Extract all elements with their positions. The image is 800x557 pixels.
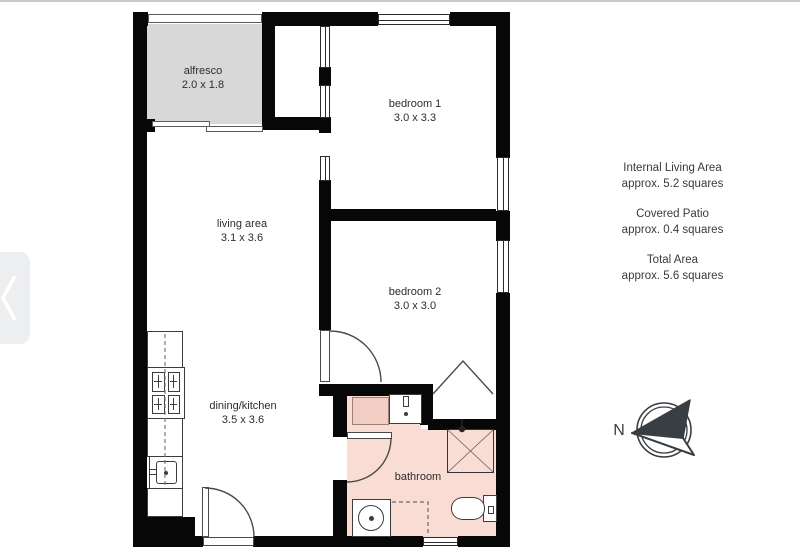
room-dims: 2.0 x 1.8 [128,78,278,92]
room-name: bedroom 2 [340,285,490,299]
room-name: dining/kitchen [168,399,318,413]
summary-value: approx. 0.4 squares [580,222,765,238]
room-label-bedroom2: bedroom 2 3.0 x 3.0 [340,285,490,313]
summary-title: Internal Living Area [580,160,765,176]
summary-item: Total Area approx. 5.6 squares [580,252,765,284]
room-label-bathroom: bathroom [343,470,493,484]
wardrobe-icon [433,361,493,394]
north-arrow-icon [628,395,702,467]
room-label-alfresco: alfresco 2.0 x 1.8 [128,64,278,92]
summary-value: approx. 5.2 squares [580,176,765,192]
summary-title: Total Area [580,252,765,268]
door-swing-arc [205,488,254,537]
summary-item: Covered Patio approx. 0.4 squares [580,206,765,238]
room-name: alfresco [128,64,278,78]
room-label-dining: dining/kitchen 3.5 x 3.6 [168,399,318,427]
room-dims: 3.0 x 3.0 [340,299,490,313]
room-dims: 3.0 x 3.3 [340,111,490,125]
summary-item: Internal Living Area approx. 5.2 squares [580,160,765,192]
area-summary: Internal Living Area approx. 5.2 squares… [580,160,765,284]
floorplan-viewer: alfresco 2.0 x 1.8 bedroom 1 3.0 x 3.3 l… [0,0,800,557]
shower-rose-icon [459,426,465,432]
room-dims: 3.1 x 3.6 [167,231,317,245]
room-name: living area [167,217,317,231]
room-label-bedroom1: bedroom 1 3.0 x 3.3 [340,97,490,125]
room-name: bathroom [343,470,493,484]
summary-title: Covered Patio [580,206,765,222]
appliance-provision-dashed [392,502,428,536]
room-name: bedroom 1 [340,97,490,111]
room-label-living: living area 3.1 x 3.6 [167,217,317,245]
summary-value: approx. 5.6 squares [580,268,765,284]
room-dims: 3.5 x 3.6 [168,413,318,427]
door-swing-arc [330,331,381,382]
